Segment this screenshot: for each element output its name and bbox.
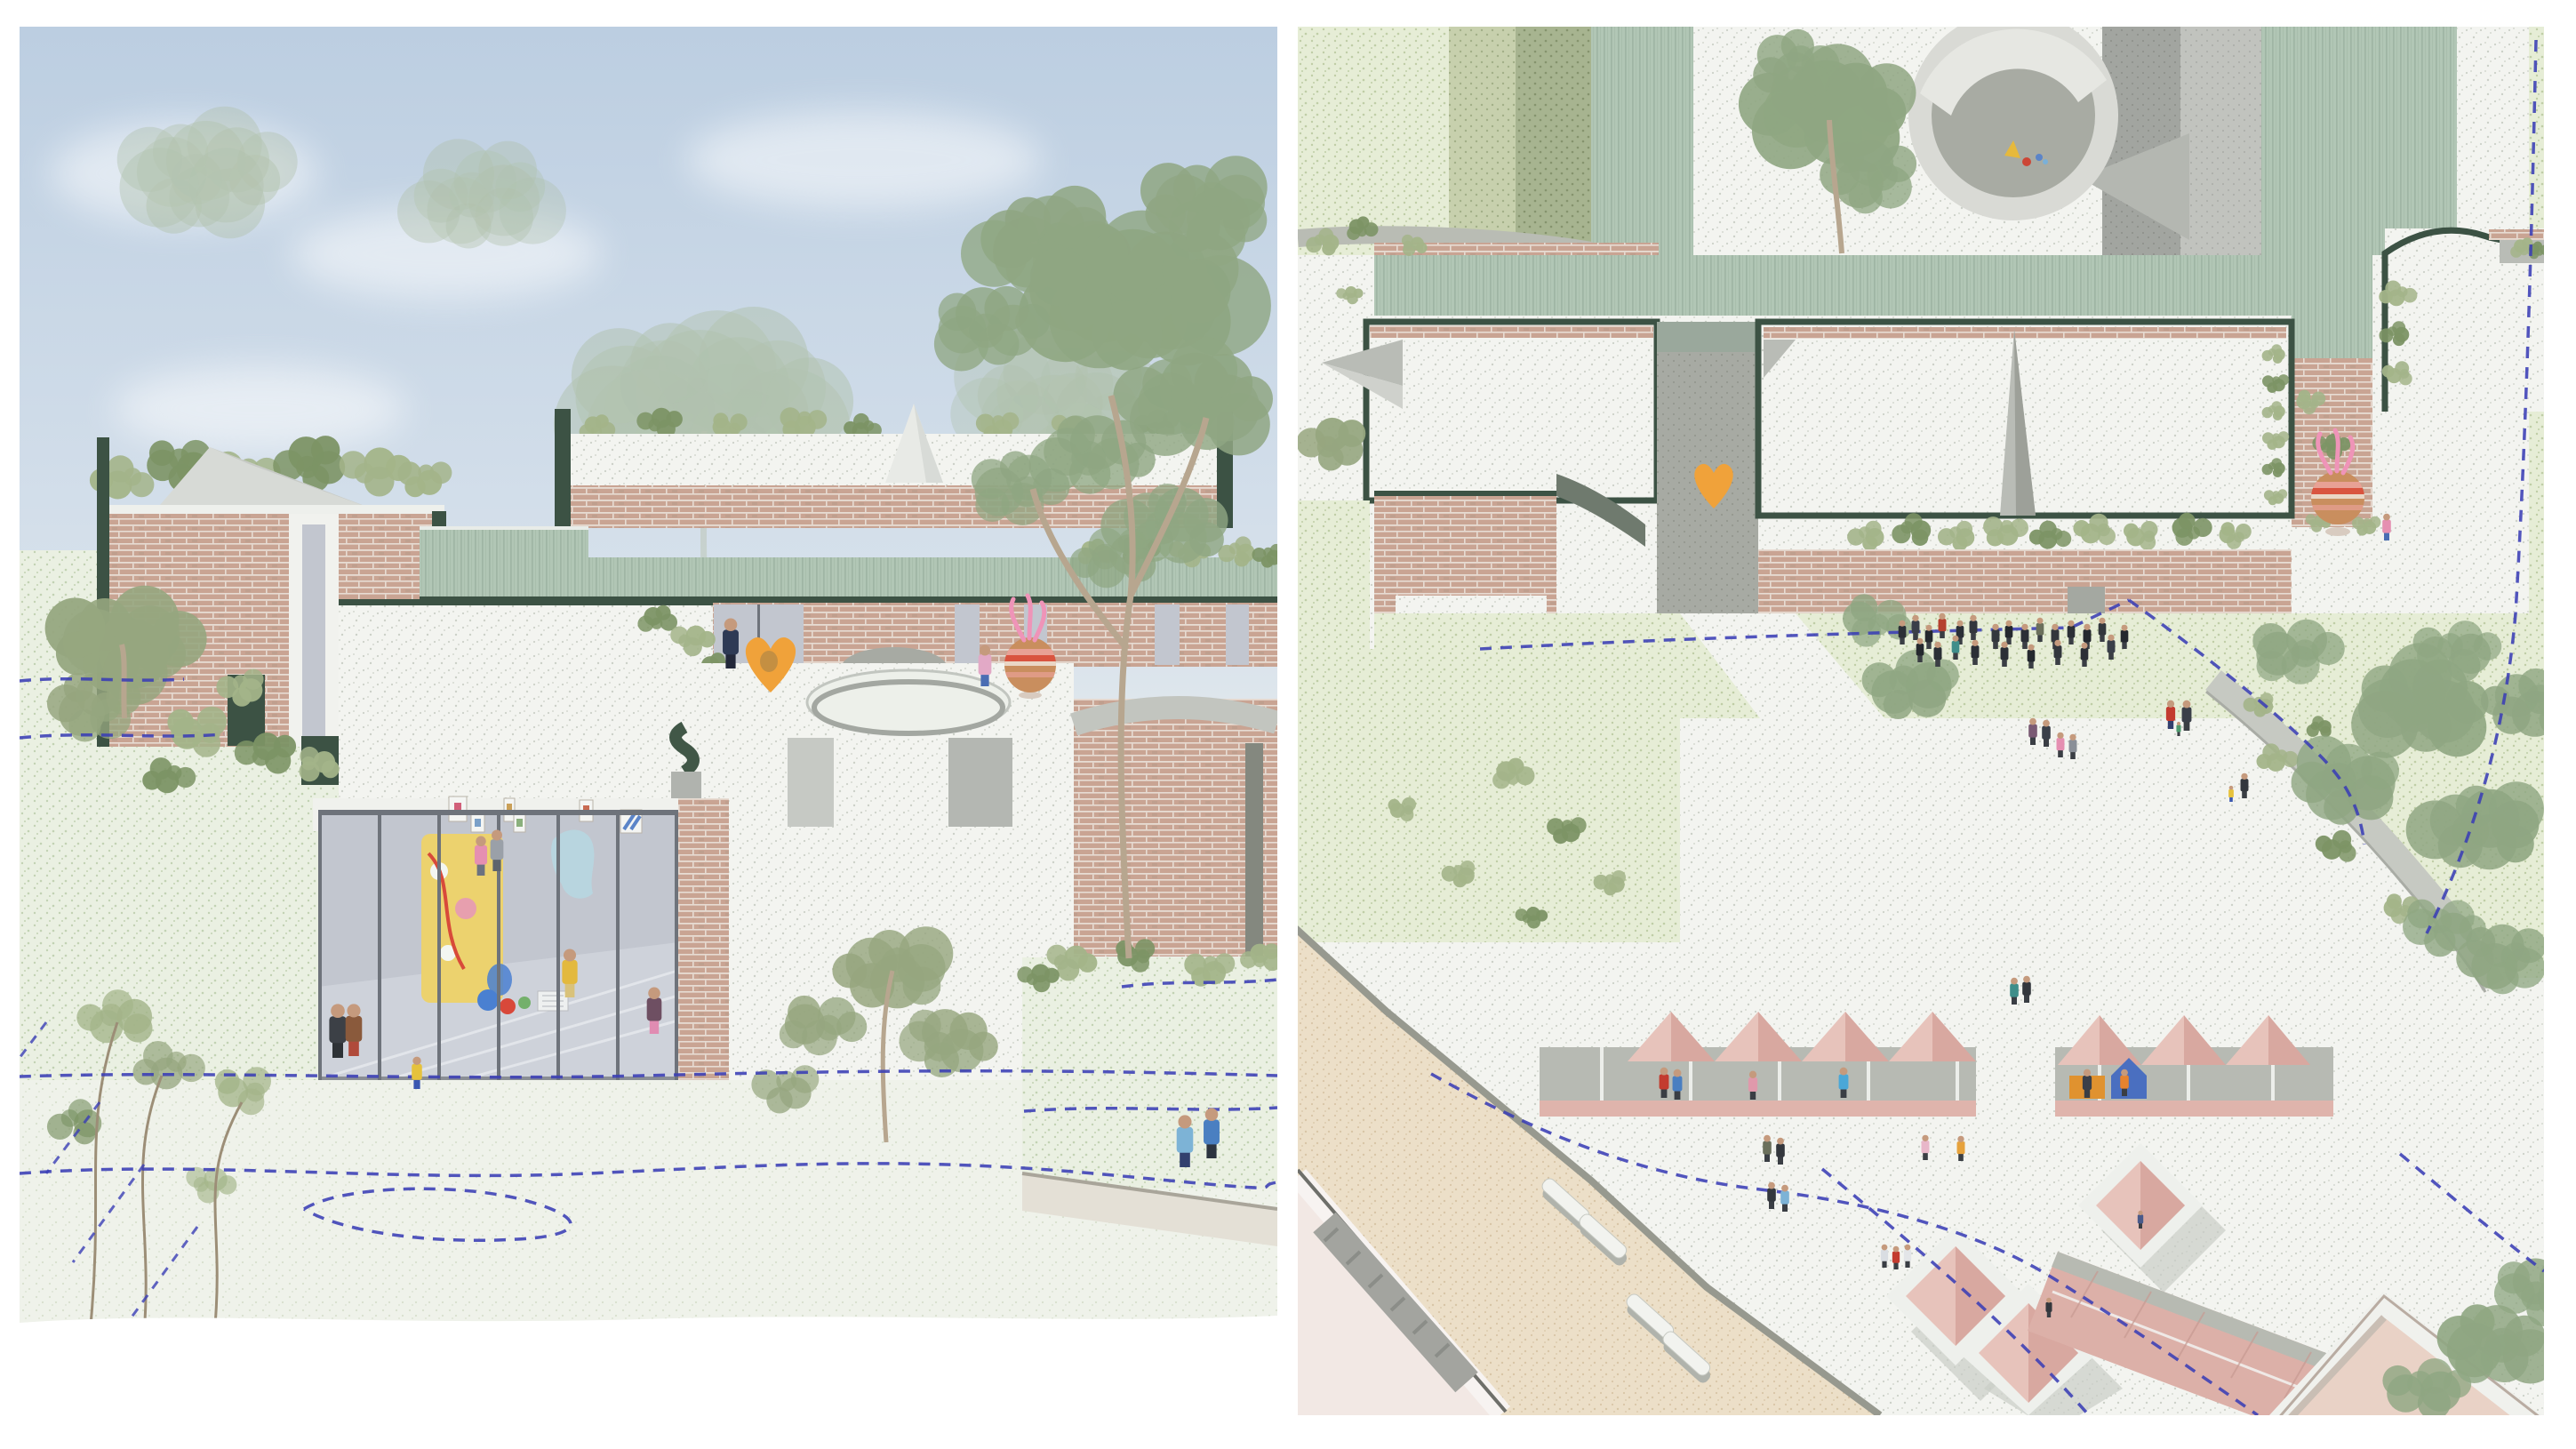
gallery-white-roof: [339, 603, 713, 800]
brick-parapet: [1764, 327, 2286, 339]
aerial-render-panel: [1298, 27, 2544, 1415]
glazed-slot: [1155, 604, 1180, 665]
brick-parapet: [1370, 325, 1653, 338]
seafoam-roof-area: [2261, 27, 2457, 255]
lawn-left-strip: [1298, 500, 1370, 669]
sphere-plinth: [1019, 692, 1042, 699]
heart-detail: [760, 651, 778, 672]
seafoam-roof-strip: [1591, 27, 1693, 255]
lawn-block-dark: [1516, 27, 1591, 255]
skylight-shade: [948, 738, 1012, 827]
glazed-slot: [1226, 604, 1249, 665]
elevation-render-panel: [20, 27, 1277, 1351]
gallery-roof-edge: [339, 599, 713, 605]
hedge-building-top-right: [2379, 228, 2544, 412]
brick-pier: [678, 798, 729, 1080]
brick-wing-right: [1074, 699, 1277, 957]
glass-gallery: [313, 797, 729, 1081]
white-roof-building-left: [1322, 322, 1657, 500]
roof-ridge: [420, 526, 588, 530]
glazed-slot: [955, 604, 980, 665]
shadow-slot: [1245, 743, 1263, 957]
lawn-block-mid: [1449, 27, 1516, 255]
green-fin: [555, 409, 571, 528]
aerial-render: [1298, 27, 2544, 1415]
parapet: [97, 505, 444, 514]
skylight-shade: [788, 738, 834, 827]
roof-wing: [2292, 255, 2372, 358]
panel-bottom-edge: [20, 1316, 1277, 1351]
gray-roof-strip-light: [2180, 27, 2261, 258]
elevation-render: [20, 27, 1277, 1351]
entry-door: [2068, 587, 2105, 613]
white-roof-building-right: [1758, 322, 2292, 613]
south-facade-brick: [1758, 549, 2292, 613]
glazed-slot: [302, 524, 325, 747]
lawn-block: [1298, 27, 1449, 255]
artwork-canvas: [0, 0, 2576, 1449]
